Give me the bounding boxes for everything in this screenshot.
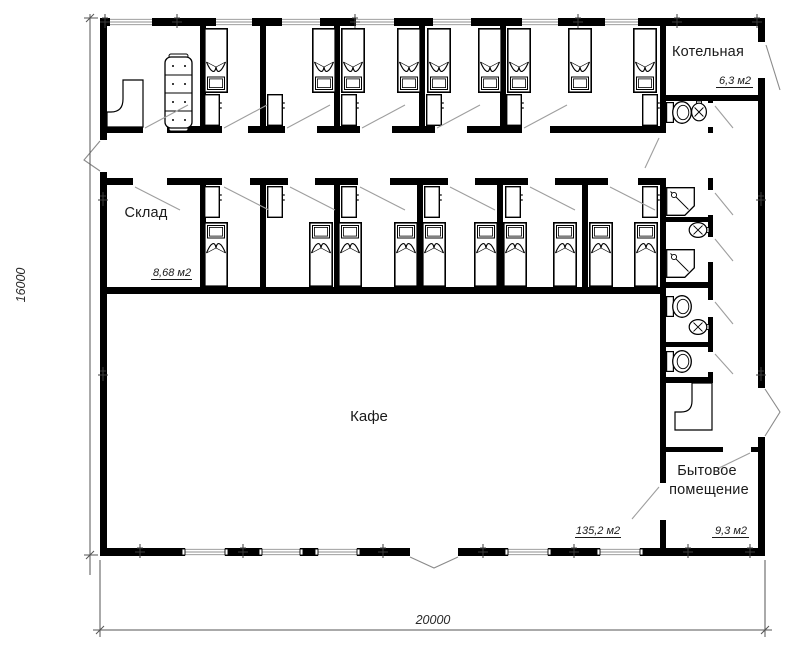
toilet-icon (667, 296, 692, 318)
bed-icon (205, 29, 227, 92)
bed-icon (339, 223, 361, 286)
room-label-cafe: Кафе (350, 408, 388, 425)
bed-icon (342, 29, 364, 92)
dimension-height: 16000 (14, 268, 28, 303)
bed-icon (634, 29, 656, 92)
bed-icon (205, 223, 227, 286)
toilet-icon (667, 351, 692, 373)
bed-icon (554, 223, 576, 286)
room-label-boiler: Котельная (672, 44, 744, 60)
bed-icon (479, 29, 501, 92)
bed-icon (590, 223, 612, 286)
wardrobe-icon (507, 95, 524, 126)
wardrobe-icon (268, 187, 285, 218)
bed-icon (398, 29, 420, 92)
floor-plan: Котельная 6,3 м2 Склад 8,68 м2 Кафе 135,… (0, 0, 800, 654)
wardrobe-icon (643, 95, 660, 126)
bed-icon (310, 223, 332, 286)
room-label-utility-line1: Бытовое (677, 463, 737, 479)
bed-icon (428, 29, 450, 92)
room-label-utility-line2: помещение (669, 482, 749, 498)
wardrobe-icon (506, 187, 523, 218)
wardrobe-icon (643, 187, 660, 218)
area-label-utility: 9,3 м2 (715, 525, 747, 537)
wardrobe-icon (425, 187, 442, 218)
area-label-boiler: 6,3 м2 (719, 75, 751, 87)
bed-icon (508, 29, 530, 92)
toilet-icon (667, 102, 692, 124)
bed-icon (423, 223, 445, 286)
bed-icon (313, 29, 335, 92)
sofa-icon (165, 54, 192, 131)
bed-icon (475, 223, 497, 286)
dimension-width: 20000 (415, 613, 451, 627)
wardrobe-icon (205, 95, 222, 126)
area-label-storage: 8,68 м2 (153, 267, 191, 279)
bed-icon (504, 223, 526, 286)
wardrobe-icon (342, 187, 359, 218)
wardrobe-icon (342, 95, 359, 126)
wardrobe-icon (427, 95, 444, 126)
bed-icon (635, 223, 657, 286)
wardrobe-icon (268, 95, 285, 126)
area-label-cafe: 135,2 м2 (576, 525, 620, 537)
room-label-storage: Склад (125, 205, 168, 221)
floor-plan-canvas: Котельная 6,3 м2 Склад 8,68 м2 Кафе 135,… (0, 0, 800, 654)
bed-icon (395, 223, 417, 286)
wardrobe-icon (205, 187, 222, 218)
bed-icon (569, 29, 591, 92)
